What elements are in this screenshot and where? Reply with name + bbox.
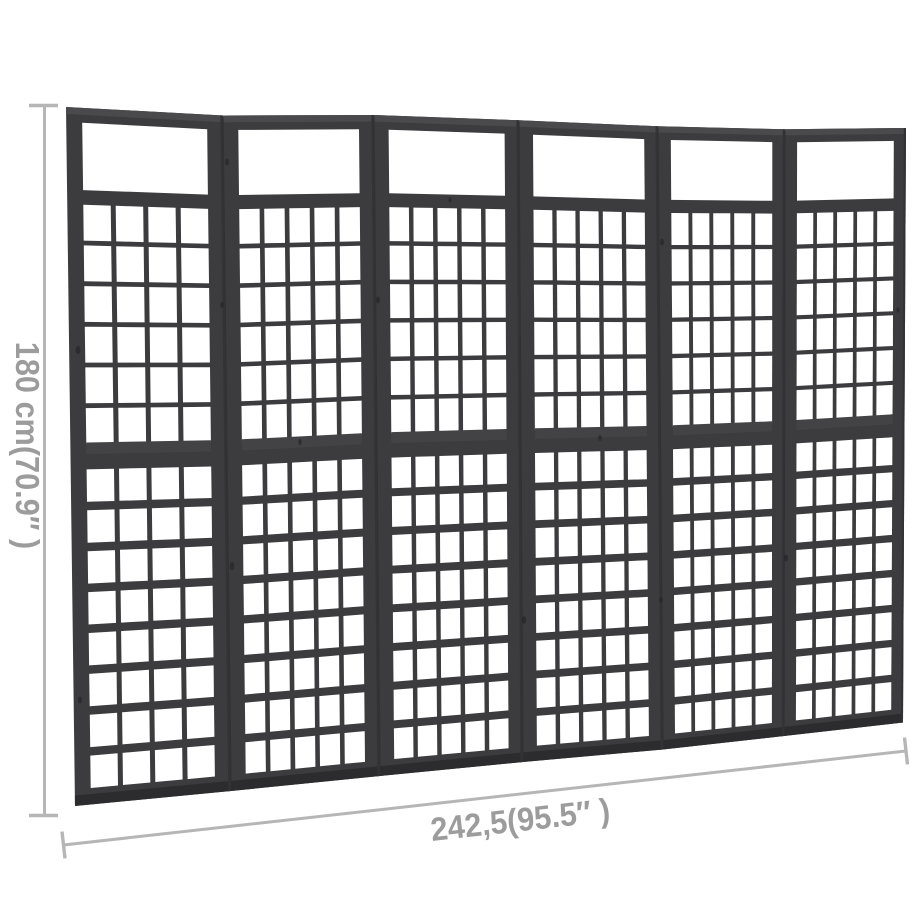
svg-text:180 cm(70.9″ ): 180 cm(70.9″ ) <box>9 342 46 549</box>
